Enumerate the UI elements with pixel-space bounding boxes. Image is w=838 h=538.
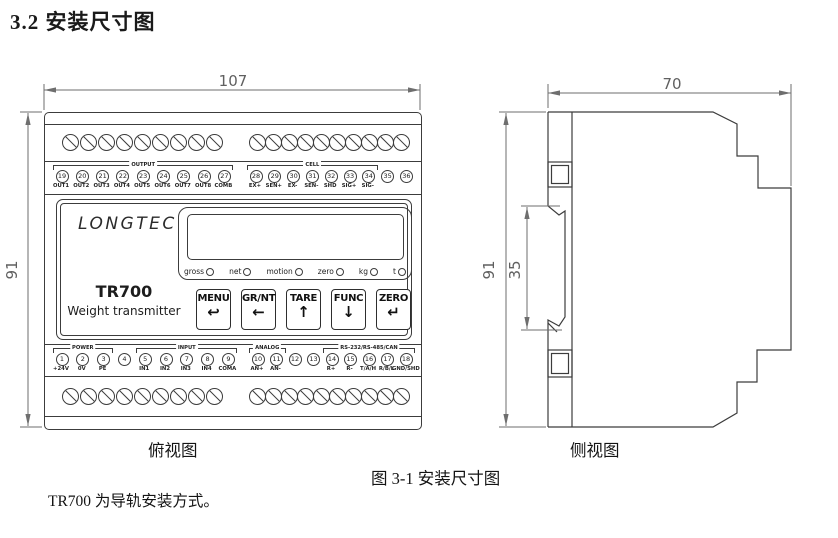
indicator-t: t bbox=[393, 267, 406, 276]
terminal-label-34: SIG- bbox=[355, 183, 381, 189]
screw-terminal-icon bbox=[188, 134, 205, 151]
terminal-18: 18 bbox=[400, 353, 413, 366]
lcd-screen bbox=[187, 214, 404, 260]
side-height-value: 91 bbox=[480, 260, 498, 279]
terminal-34: 34 bbox=[362, 170, 375, 183]
terminal-label-18: GND/SHD bbox=[392, 366, 418, 372]
terminal-32: 32 bbox=[325, 170, 338, 183]
rail-height-value: 35 bbox=[506, 260, 524, 279]
indicator-label: kg bbox=[359, 267, 368, 276]
screw-terminal-icon bbox=[265, 134, 282, 151]
terminal-17: 17 bbox=[381, 353, 394, 366]
divider-line bbox=[44, 194, 422, 195]
menu-button: MENU ↩ bbox=[196, 289, 231, 330]
screw-terminal-icon bbox=[377, 134, 394, 151]
terminal-16: 16 bbox=[363, 353, 376, 366]
terminal-label-11: AN- bbox=[263, 366, 289, 372]
up-arrow-icon: ↑ bbox=[287, 304, 320, 321]
terminal-group-bracket: ANALOG bbox=[249, 348, 286, 353]
screw-terminal-icon bbox=[393, 388, 410, 405]
screw-terminal-icon bbox=[152, 134, 169, 151]
screw-terminal-icon bbox=[152, 388, 169, 405]
indicator-lamp-icon bbox=[295, 268, 303, 276]
terminal-11: 11 bbox=[270, 353, 283, 366]
terminal-12: 12 bbox=[289, 353, 302, 366]
indicator-lamp-icon bbox=[336, 268, 344, 276]
zero-button: ZERO ↵ bbox=[376, 289, 411, 330]
terminal-30: 30 bbox=[287, 170, 300, 183]
back-arrow-icon: ↩ bbox=[197, 304, 230, 321]
side-view-caption: 侧视图 bbox=[570, 437, 620, 461]
screw-terminal-icon bbox=[170, 134, 187, 151]
rail-height-dimension: 35 bbox=[506, 206, 562, 330]
divider-line bbox=[44, 416, 422, 417]
screw-terminal-icon bbox=[281, 388, 298, 405]
terminal-10: 10 bbox=[252, 353, 265, 366]
model-block: TR700 Weight transmitter bbox=[57, 200, 191, 339]
screw-terminal-icon bbox=[188, 388, 205, 405]
screw-terminal-icon bbox=[170, 388, 187, 405]
screw-terminal-icon bbox=[313, 388, 330, 405]
screw-terminal-icon bbox=[134, 134, 151, 151]
indicator-label: gross bbox=[184, 267, 204, 276]
display-unit: gross net motion zero kg t bbox=[178, 207, 412, 280]
front-width-value: 107 bbox=[219, 72, 248, 90]
figure-caption: 图 3-1 安装尺寸图 bbox=[371, 465, 500, 489]
indicator-lamp-icon bbox=[398, 268, 406, 276]
terminal-group-top_right: CELL28EX+29SEN+30EX-31SEN-32SHD33SIG+34S… bbox=[45, 161, 421, 194]
terminal-group-label: ANALOG bbox=[253, 344, 281, 352]
terminal-14: 14 bbox=[326, 353, 339, 366]
screw-terminal-icon bbox=[345, 388, 362, 405]
indicator-label: t bbox=[393, 267, 396, 276]
tare-button: TARE ↑ bbox=[286, 289, 321, 330]
indicator-lamp-icon bbox=[370, 268, 378, 276]
screw-terminal-icon bbox=[297, 388, 314, 405]
screw-terminal-icon bbox=[265, 388, 282, 405]
side-width-dimension: 70 bbox=[548, 75, 791, 186]
screw-terminal-icon bbox=[62, 134, 79, 151]
screw-terminal-icon bbox=[249, 134, 266, 151]
indicator-label: zero bbox=[318, 267, 334, 276]
screw-terminal-icon bbox=[281, 134, 298, 151]
front-view-device: LONGTEC TR700 Weight transmitter gross n… bbox=[44, 112, 422, 430]
terminal-13: 13 bbox=[307, 353, 320, 366]
front-view-caption: 俯视图 bbox=[148, 437, 198, 461]
screw-terminal-icon bbox=[116, 134, 133, 151]
screw-terminal-icon bbox=[206, 134, 223, 151]
front-height-value: 91 bbox=[3, 260, 21, 279]
screw-terminal-icon bbox=[377, 388, 394, 405]
side-width-value: 70 bbox=[662, 75, 681, 93]
indicator-label: net bbox=[229, 267, 241, 276]
screw-terminal-icon bbox=[329, 134, 346, 151]
terminal-group-bracket: RS-232/RS-485/CAN bbox=[323, 348, 415, 353]
screw-terminal-icon bbox=[134, 388, 151, 405]
indicator-row: gross net motion zero kg t bbox=[184, 267, 406, 276]
indicator-lamp-icon bbox=[243, 268, 251, 276]
screw-terminal-icon bbox=[62, 388, 79, 405]
indicator-zero: zero bbox=[318, 267, 344, 276]
terminal-15: 15 bbox=[344, 353, 357, 366]
terminal-36: 36 bbox=[400, 170, 413, 183]
func-button: FUNC ↓ bbox=[331, 289, 366, 330]
terminal-group-bracket: CELL bbox=[247, 165, 378, 170]
screw-terminal-icon bbox=[297, 134, 314, 151]
model-subtitle: Weight transmitter bbox=[57, 304, 191, 318]
indicator-label: motion bbox=[266, 267, 292, 276]
terminal-group-label: CELL bbox=[303, 161, 321, 169]
terminal-33: 33 bbox=[344, 170, 357, 183]
grnt-button: GR/NT ← bbox=[241, 289, 276, 330]
screw-terminal-icon bbox=[329, 388, 346, 405]
indicator-lamp-icon bbox=[206, 268, 214, 276]
screw-terminal-icon bbox=[98, 134, 115, 151]
side-view-drawing bbox=[548, 112, 791, 427]
down-arrow-icon: ↓ bbox=[332, 304, 365, 321]
screw-terminal-icon bbox=[249, 388, 266, 405]
terminal-28: 28 bbox=[250, 170, 263, 183]
screw-terminal-icon bbox=[80, 388, 97, 405]
screw-terminal-icon bbox=[345, 134, 362, 151]
screw-terminal-icon bbox=[98, 388, 115, 405]
front-height-dimension: 91 bbox=[3, 112, 42, 427]
indicator-motion: motion bbox=[266, 267, 302, 276]
indicator-kg: kg bbox=[359, 267, 378, 276]
screw-terminal-icon bbox=[361, 388, 378, 405]
screw-terminal-icon bbox=[393, 134, 410, 151]
terminal-29: 29 bbox=[268, 170, 281, 183]
model-name: TR700 bbox=[57, 282, 191, 301]
terminal-31: 31 bbox=[306, 170, 319, 183]
terminal-35: 35 bbox=[381, 170, 394, 183]
screw-terminal-icon bbox=[313, 134, 330, 151]
indicator-gross: gross bbox=[184, 267, 214, 276]
indicator-net: net bbox=[229, 267, 251, 276]
terminal-group-bottom_right: ANALOGRS-232/RS-485/CAN10AN+11AN-121314R… bbox=[45, 344, 421, 377]
front-width-dimension: 107 bbox=[44, 72, 420, 110]
screw-terminal-icon bbox=[206, 388, 223, 405]
enter-arrow-icon: ↵ bbox=[377, 304, 410, 321]
manual-page: 3.2 安装尺寸图 107 91 bbox=[0, 0, 838, 538]
divider-line bbox=[44, 124, 422, 125]
body-text: TR700 为导轨安装方式。 bbox=[48, 489, 219, 511]
screw-terminal-icon bbox=[361, 134, 378, 151]
terminal-group-label: RS-232/RS-485/CAN bbox=[338, 344, 399, 352]
screw-terminal-icon bbox=[116, 388, 133, 405]
front-panel: LONGTEC TR700 Weight transmitter gross n… bbox=[56, 199, 412, 340]
screw-terminal-icon bbox=[80, 134, 97, 151]
left-arrow-icon: ← bbox=[242, 304, 275, 321]
